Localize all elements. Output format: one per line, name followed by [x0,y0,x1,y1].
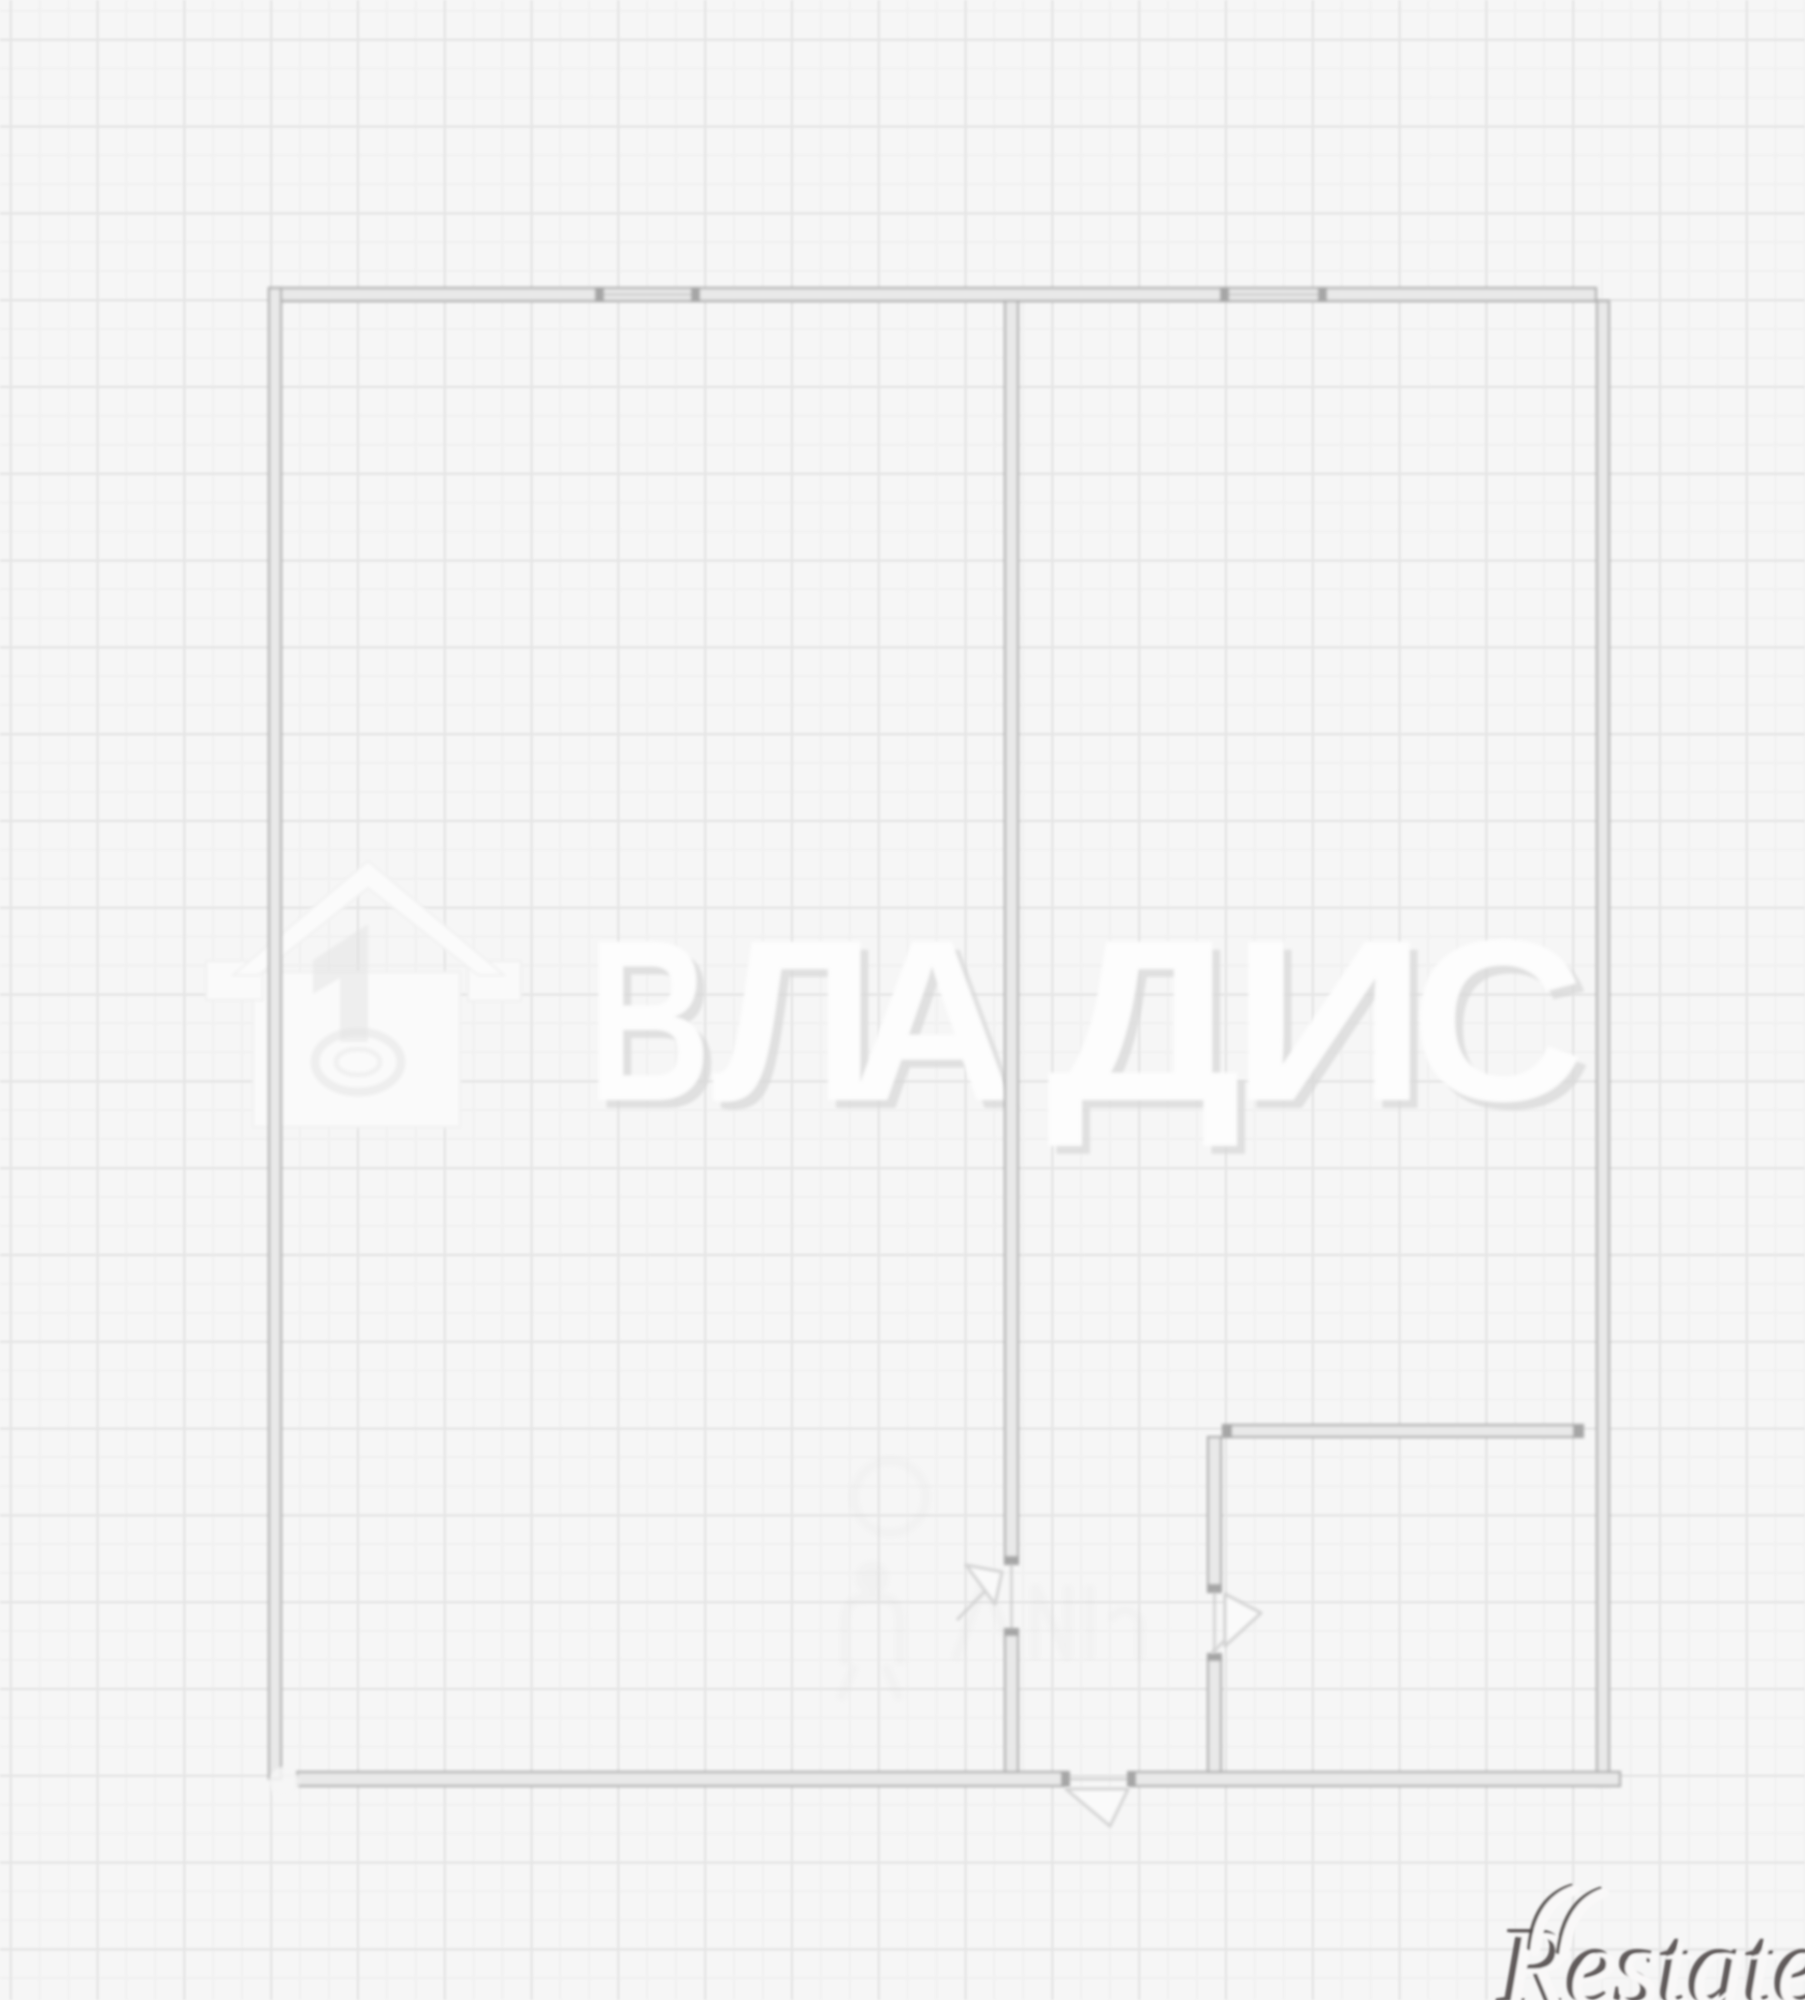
svg-text:И: И [1230,892,1428,1149]
svg-text:Д: Д [1046,892,1242,1149]
svg-text:С: С [1410,892,1585,1149]
svg-text:В: В [587,892,711,1149]
svg-text:А: А [848,892,1016,1149]
